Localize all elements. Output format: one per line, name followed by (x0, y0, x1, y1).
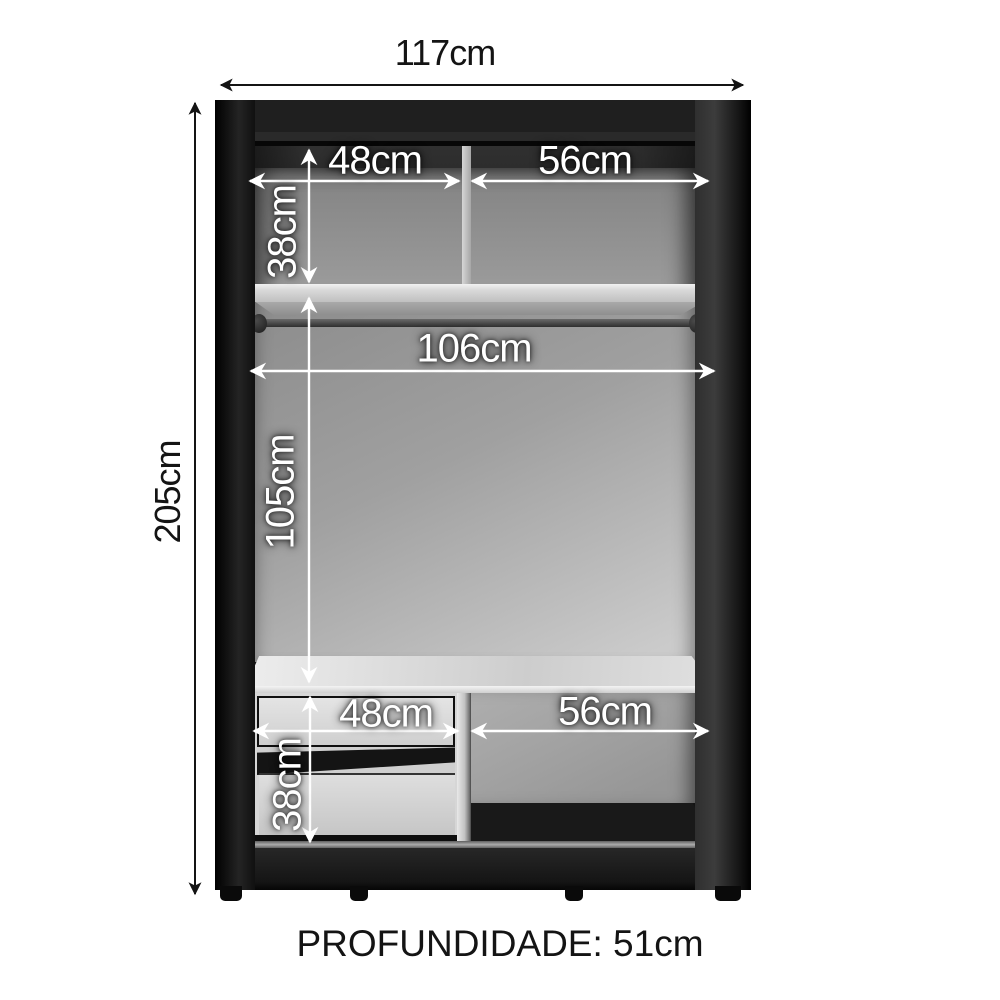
top-shelf-divider (462, 146, 471, 292)
rod-width-label: 106cm (416, 327, 531, 372)
foot (350, 886, 368, 901)
bottom-left-width-label: 48cm (339, 692, 433, 737)
depth-label: PROFUNDIDADE: 51cm (296, 923, 703, 965)
foot (715, 886, 741, 901)
back-panel-top-section (255, 168, 695, 292)
foot (220, 886, 242, 901)
overall-height-label: 205cm (147, 440, 189, 543)
upper-shelf-bevel (251, 302, 708, 315)
bottom-section-height-label: 38cm (266, 738, 311, 832)
wardrobe-dimension-diagram: 117cm 205cm PROFUNDIDADE: 51cm (0, 0, 1000, 1000)
bottom-divider-panel (457, 693, 471, 843)
top-section-height-label: 38cm (261, 185, 306, 279)
upper-shelf (246, 284, 714, 302)
bottom-right-width-label: 56cm (558, 690, 652, 735)
base-panel (215, 848, 751, 890)
left-side-panel (215, 100, 255, 890)
right-side-panel (695, 100, 751, 890)
hanging-height-label: 105cm (259, 434, 304, 549)
foot (565, 886, 583, 901)
lower-shelf (246, 656, 714, 686)
overall-width-label: 117cm (395, 32, 495, 74)
top-left-width-label: 48cm (328, 139, 422, 184)
top-right-width-label: 56cm (538, 139, 632, 184)
